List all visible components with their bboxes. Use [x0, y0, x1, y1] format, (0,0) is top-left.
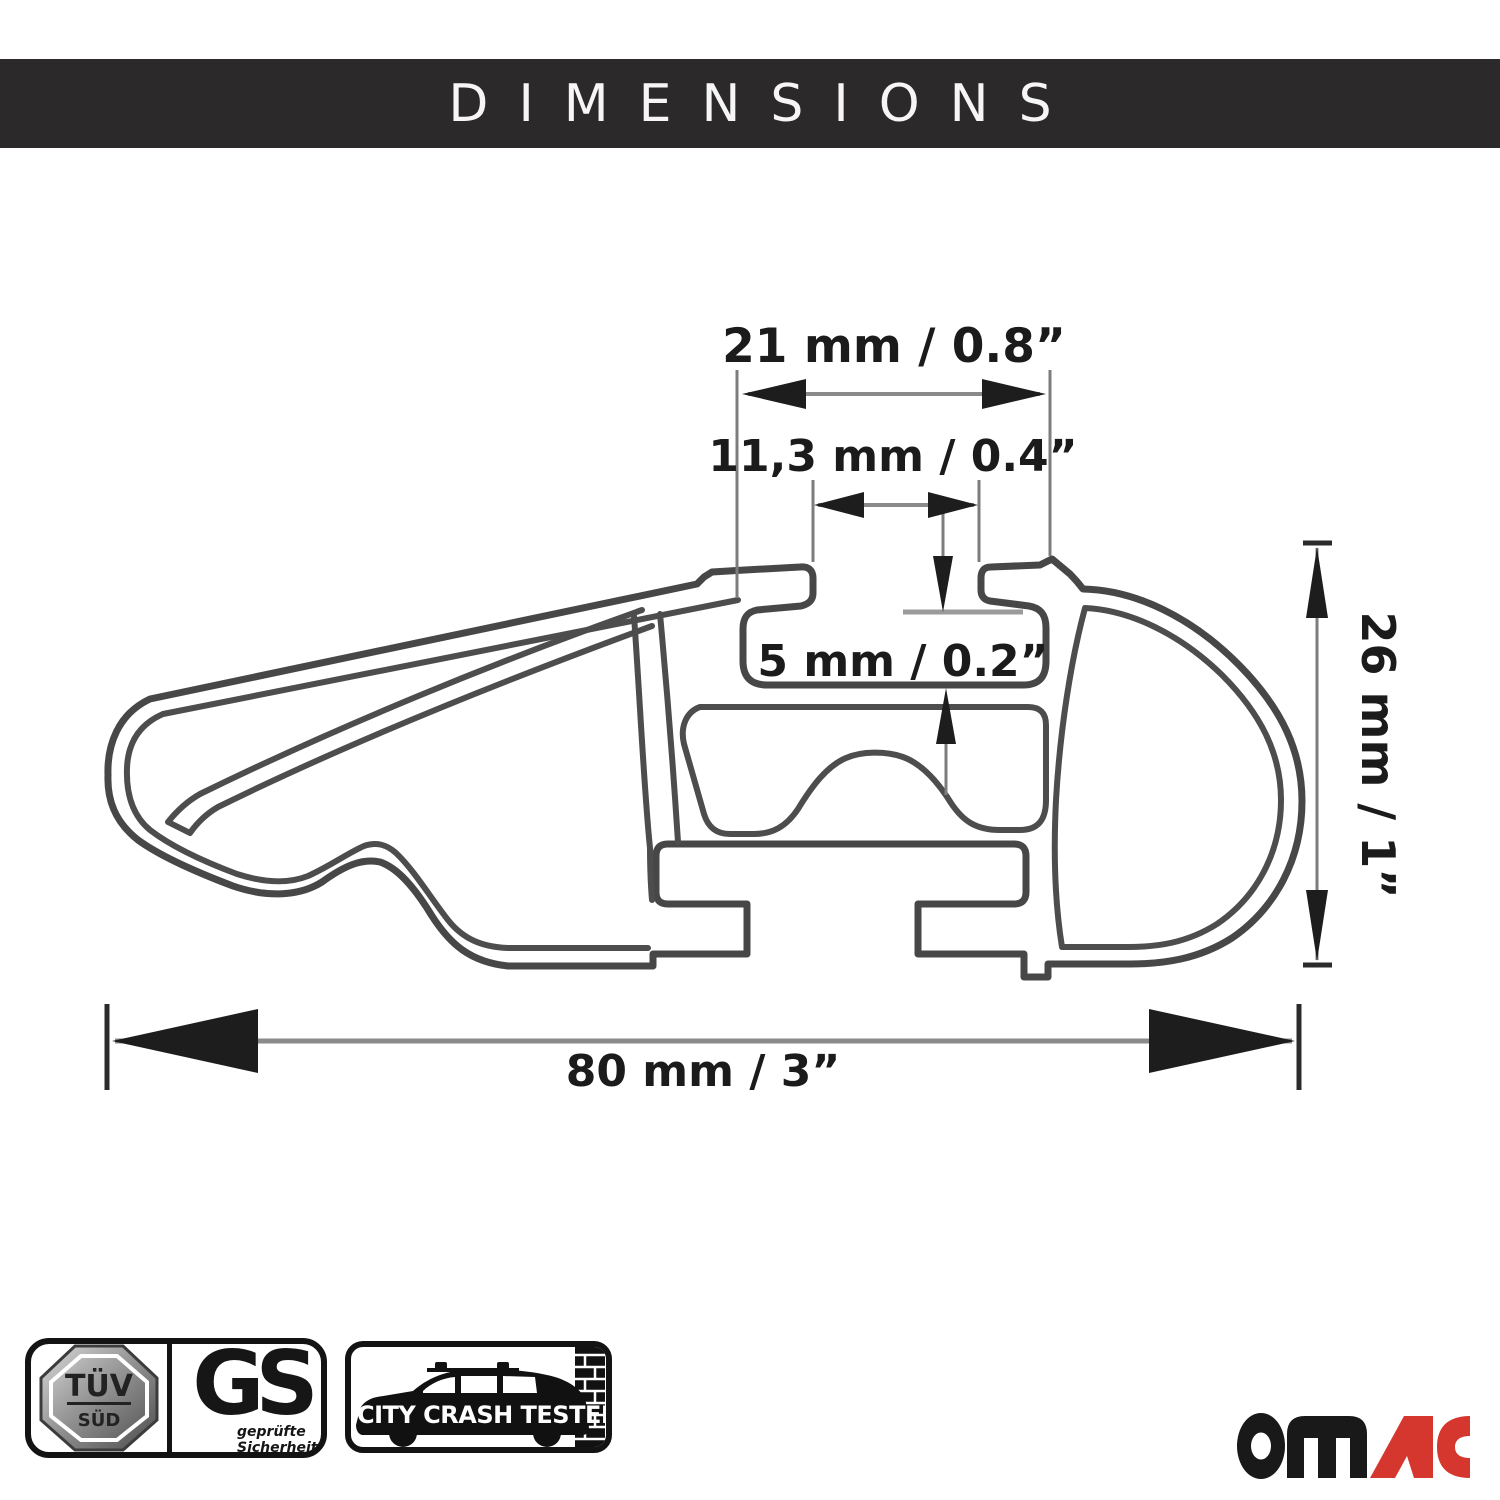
profile-outer-outline — [108, 559, 1302, 977]
gs-subtext: geprüfte Sicherheit — [237, 1424, 318, 1456]
dim-26mm-arrow-up — [1306, 547, 1328, 618]
sued-text: SÜD — [78, 1409, 121, 1431]
dim-26mm-arrow-down — [1306, 890, 1328, 961]
crossbar-cross-section-drawing: 21 mm / 0.8” 11,3 mm / 0.4” 5 mm / 0.2” … — [0, 0, 1500, 1500]
crash-car-icon — [351, 1347, 606, 1447]
crash-tested-label: CITY CRASH TESTED — [357, 1401, 583, 1429]
letter-m — [1287, 1416, 1367, 1478]
dim-80mm-label: 80 mm / 3” — [566, 1046, 840, 1097]
tuv-octagon-icon: TÜV SÜD — [37, 1344, 161, 1452]
gs-mark: GS — [173, 1332, 329, 1435]
dim-11mm-arrow-right — [928, 492, 978, 518]
tuv-text: TÜV — [65, 1367, 134, 1404]
page: DIMENSIONS 21 mm / 0.8” 11,3 mm / 0.4” — [0, 0, 1500, 1500]
dim-26mm-label: 26 mm / 1” — [1351, 612, 1405, 899]
letter-a — [1370, 1416, 1433, 1478]
dim-5mm-arrow-down — [933, 556, 953, 612]
dim-21mm-arrow-right — [982, 379, 1046, 409]
dim-5mm-label: 5 mm / 0.2” — [757, 636, 1048, 687]
badge-divider — [167, 1344, 172, 1452]
omac-logo-graphic — [1232, 1408, 1474, 1482]
dim-80mm-arrow-left — [112, 1009, 258, 1073]
tuv-underline — [67, 1402, 131, 1405]
gs-subtext-line2: Sicherheit — [237, 1440, 318, 1456]
dim-21mm-arrow-left — [742, 379, 806, 409]
letter-c — [1437, 1416, 1470, 1478]
city-crash-tested-badge: CITY CRASH TESTED — [345, 1341, 612, 1453]
gs-subtext-line1: geprüfte — [237, 1424, 318, 1440]
tuv-gs-badge: TÜV SÜD GS geprüfte Sicherheit — [25, 1338, 327, 1458]
omac-logo: OM AC — [1232, 1408, 1474, 1482]
dim-11mm-label: 11,3 mm / 0.4” — [708, 431, 1077, 482]
dim-11mm-arrow-left — [814, 492, 864, 518]
dim-80mm-arrow-right — [1149, 1009, 1295, 1073]
letter-o — [1237, 1413, 1285, 1479]
dim-21mm-label: 21 mm / 0.8” — [722, 319, 1066, 374]
